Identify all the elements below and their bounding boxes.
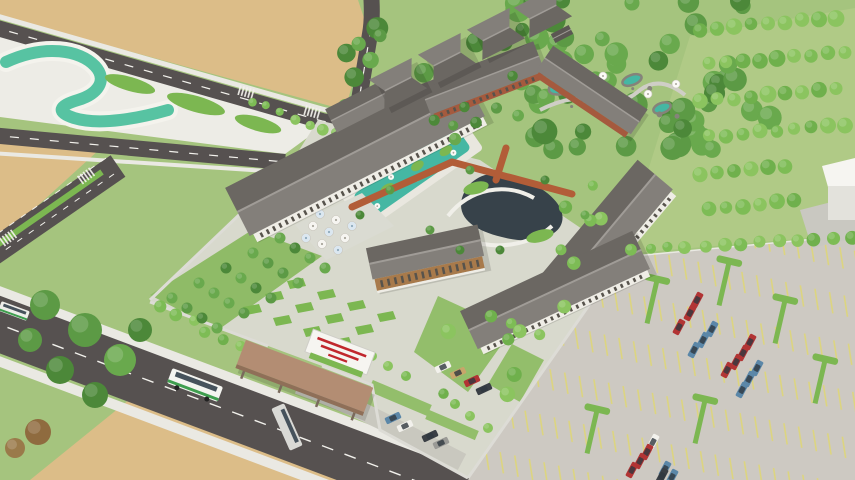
- tree: [839, 46, 852, 59]
- tree: [513, 324, 527, 338]
- tree: [754, 236, 766, 248]
- tree: [128, 318, 152, 342]
- tree: [711, 92, 724, 105]
- tree: [320, 263, 331, 274]
- tree: [167, 293, 178, 304]
- tree: [771, 125, 783, 137]
- resort-aerial-rendering: [0, 0, 855, 480]
- tree: [660, 34, 680, 54]
- tree: [820, 118, 836, 134]
- tree: [769, 193, 785, 209]
- tree: [557, 300, 571, 314]
- tree: [466, 166, 475, 175]
- tree: [673, 119, 692, 138]
- tree: [761, 16, 775, 30]
- tree: [374, 29, 387, 42]
- tree: [760, 86, 777, 103]
- tree: [441, 324, 456, 339]
- tree: [734, 238, 747, 251]
- tree: [68, 313, 102, 347]
- tree: [778, 86, 793, 101]
- tree: [502, 333, 514, 345]
- tree: [450, 399, 460, 409]
- tree: [485, 310, 497, 322]
- tree: [449, 133, 461, 145]
- tree: [703, 141, 720, 158]
- tree: [212, 323, 223, 334]
- tree: [30, 290, 60, 320]
- tree: [769, 50, 786, 67]
- tree: [224, 298, 235, 309]
- tree: [829, 82, 842, 95]
- tree: [199, 327, 210, 338]
- tree: [811, 82, 827, 98]
- tree: [811, 11, 827, 27]
- tree: [787, 193, 801, 207]
- tree: [496, 246, 505, 255]
- tree: [720, 201, 732, 213]
- tree: [275, 233, 286, 244]
- tree: [362, 52, 379, 69]
- tree: [507, 367, 522, 382]
- tree: [507, 71, 518, 82]
- tree: [194, 278, 205, 289]
- tree: [718, 238, 732, 252]
- tree: [5, 438, 25, 458]
- tree: [182, 303, 193, 314]
- tree: [401, 371, 411, 381]
- tree: [251, 283, 262, 294]
- tree: [290, 115, 300, 125]
- tree: [773, 234, 786, 247]
- tree: [700, 241, 712, 253]
- tree: [209, 288, 220, 299]
- tree: [317, 124, 329, 136]
- tree: [625, 244, 637, 256]
- tree: [236, 273, 247, 284]
- tree: [804, 49, 817, 62]
- tree: [483, 423, 493, 433]
- tree: [703, 57, 716, 70]
- tree: [588, 181, 598, 191]
- rendering-canvas: Aerial 3D architectural rendering of a h…: [0, 0, 855, 480]
- tree: [239, 308, 250, 319]
- tree: [262, 101, 270, 109]
- tree: [559, 201, 572, 214]
- rock: [631, 87, 634, 90]
- tree: [556, 244, 567, 255]
- tree: [276, 108, 284, 116]
- tree: [605, 42, 628, 65]
- tree: [735, 199, 751, 215]
- tree: [197, 313, 208, 324]
- tree: [727, 164, 741, 178]
- tree: [104, 344, 136, 376]
- tree: [448, 121, 458, 131]
- tree: [154, 300, 166, 312]
- tree: [470, 117, 482, 129]
- tree: [500, 387, 516, 403]
- tree: [788, 123, 800, 135]
- tree: [753, 198, 767, 212]
- tree: [356, 211, 365, 220]
- tree: [305, 253, 316, 264]
- tree: [827, 232, 840, 245]
- tree: [266, 293, 277, 304]
- tree: [25, 419, 51, 445]
- tree: [662, 242, 672, 252]
- tree: [344, 67, 364, 87]
- tree: [218, 334, 229, 345]
- tree: [491, 102, 502, 113]
- tree: [791, 234, 803, 246]
- tree: [169, 309, 182, 322]
- tree: [753, 123, 768, 138]
- tree: [512, 110, 524, 122]
- tree: [795, 85, 809, 99]
- tree: [569, 138, 586, 155]
- tree: [646, 244, 656, 254]
- tree: [278, 268, 289, 279]
- tree: [429, 115, 440, 126]
- tree: [737, 128, 750, 141]
- tree: [787, 49, 801, 63]
- tree: [248, 98, 257, 107]
- tree: [720, 56, 732, 68]
- tree: [727, 93, 740, 106]
- tree: [726, 18, 742, 34]
- tree: [616, 136, 637, 157]
- tree: [660, 136, 684, 160]
- tree: [760, 159, 776, 175]
- tree: [745, 18, 758, 31]
- tree: [649, 51, 669, 71]
- tree: [383, 361, 393, 371]
- tree: [710, 166, 724, 180]
- tree: [532, 119, 558, 145]
- tree: [574, 44, 594, 64]
- tree: [693, 23, 707, 37]
- tree: [426, 226, 435, 235]
- tree: [752, 53, 768, 69]
- tree: [805, 120, 818, 133]
- rock: [675, 114, 680, 119]
- rock: [657, 111, 663, 117]
- tree: [18, 328, 42, 352]
- rock: [570, 105, 573, 108]
- tree: [744, 161, 759, 176]
- tree: [352, 37, 366, 51]
- tree: [459, 102, 469, 112]
- tree: [837, 118, 853, 134]
- tree: [778, 159, 793, 174]
- tree: [678, 241, 691, 254]
- tree: [221, 263, 232, 274]
- tree: [541, 176, 550, 185]
- tree: [263, 258, 274, 269]
- tree: [595, 32, 610, 47]
- tree: [306, 121, 315, 130]
- tree: [703, 129, 715, 141]
- tree: [807, 233, 821, 247]
- tree: [575, 124, 591, 140]
- tree: [736, 53, 751, 68]
- tree: [744, 91, 758, 105]
- tree: [692, 93, 707, 108]
- tree: [456, 246, 465, 255]
- tree: [581, 211, 590, 220]
- tree: [386, 186, 395, 195]
- tree: [795, 12, 809, 26]
- tree: [778, 16, 793, 31]
- tree: [248, 248, 259, 259]
- tree: [710, 21, 724, 35]
- tree: [719, 129, 733, 143]
- tree: [828, 10, 845, 27]
- tree: [465, 411, 475, 421]
- tree: [821, 46, 835, 60]
- tree: [692, 167, 707, 182]
- tree: [567, 256, 581, 270]
- tree: [46, 356, 74, 384]
- tree: [82, 382, 108, 408]
- tree: [534, 329, 545, 340]
- tree: [702, 202, 717, 217]
- tree: [438, 388, 448, 398]
- tree: [290, 243, 301, 254]
- tree: [293, 278, 304, 289]
